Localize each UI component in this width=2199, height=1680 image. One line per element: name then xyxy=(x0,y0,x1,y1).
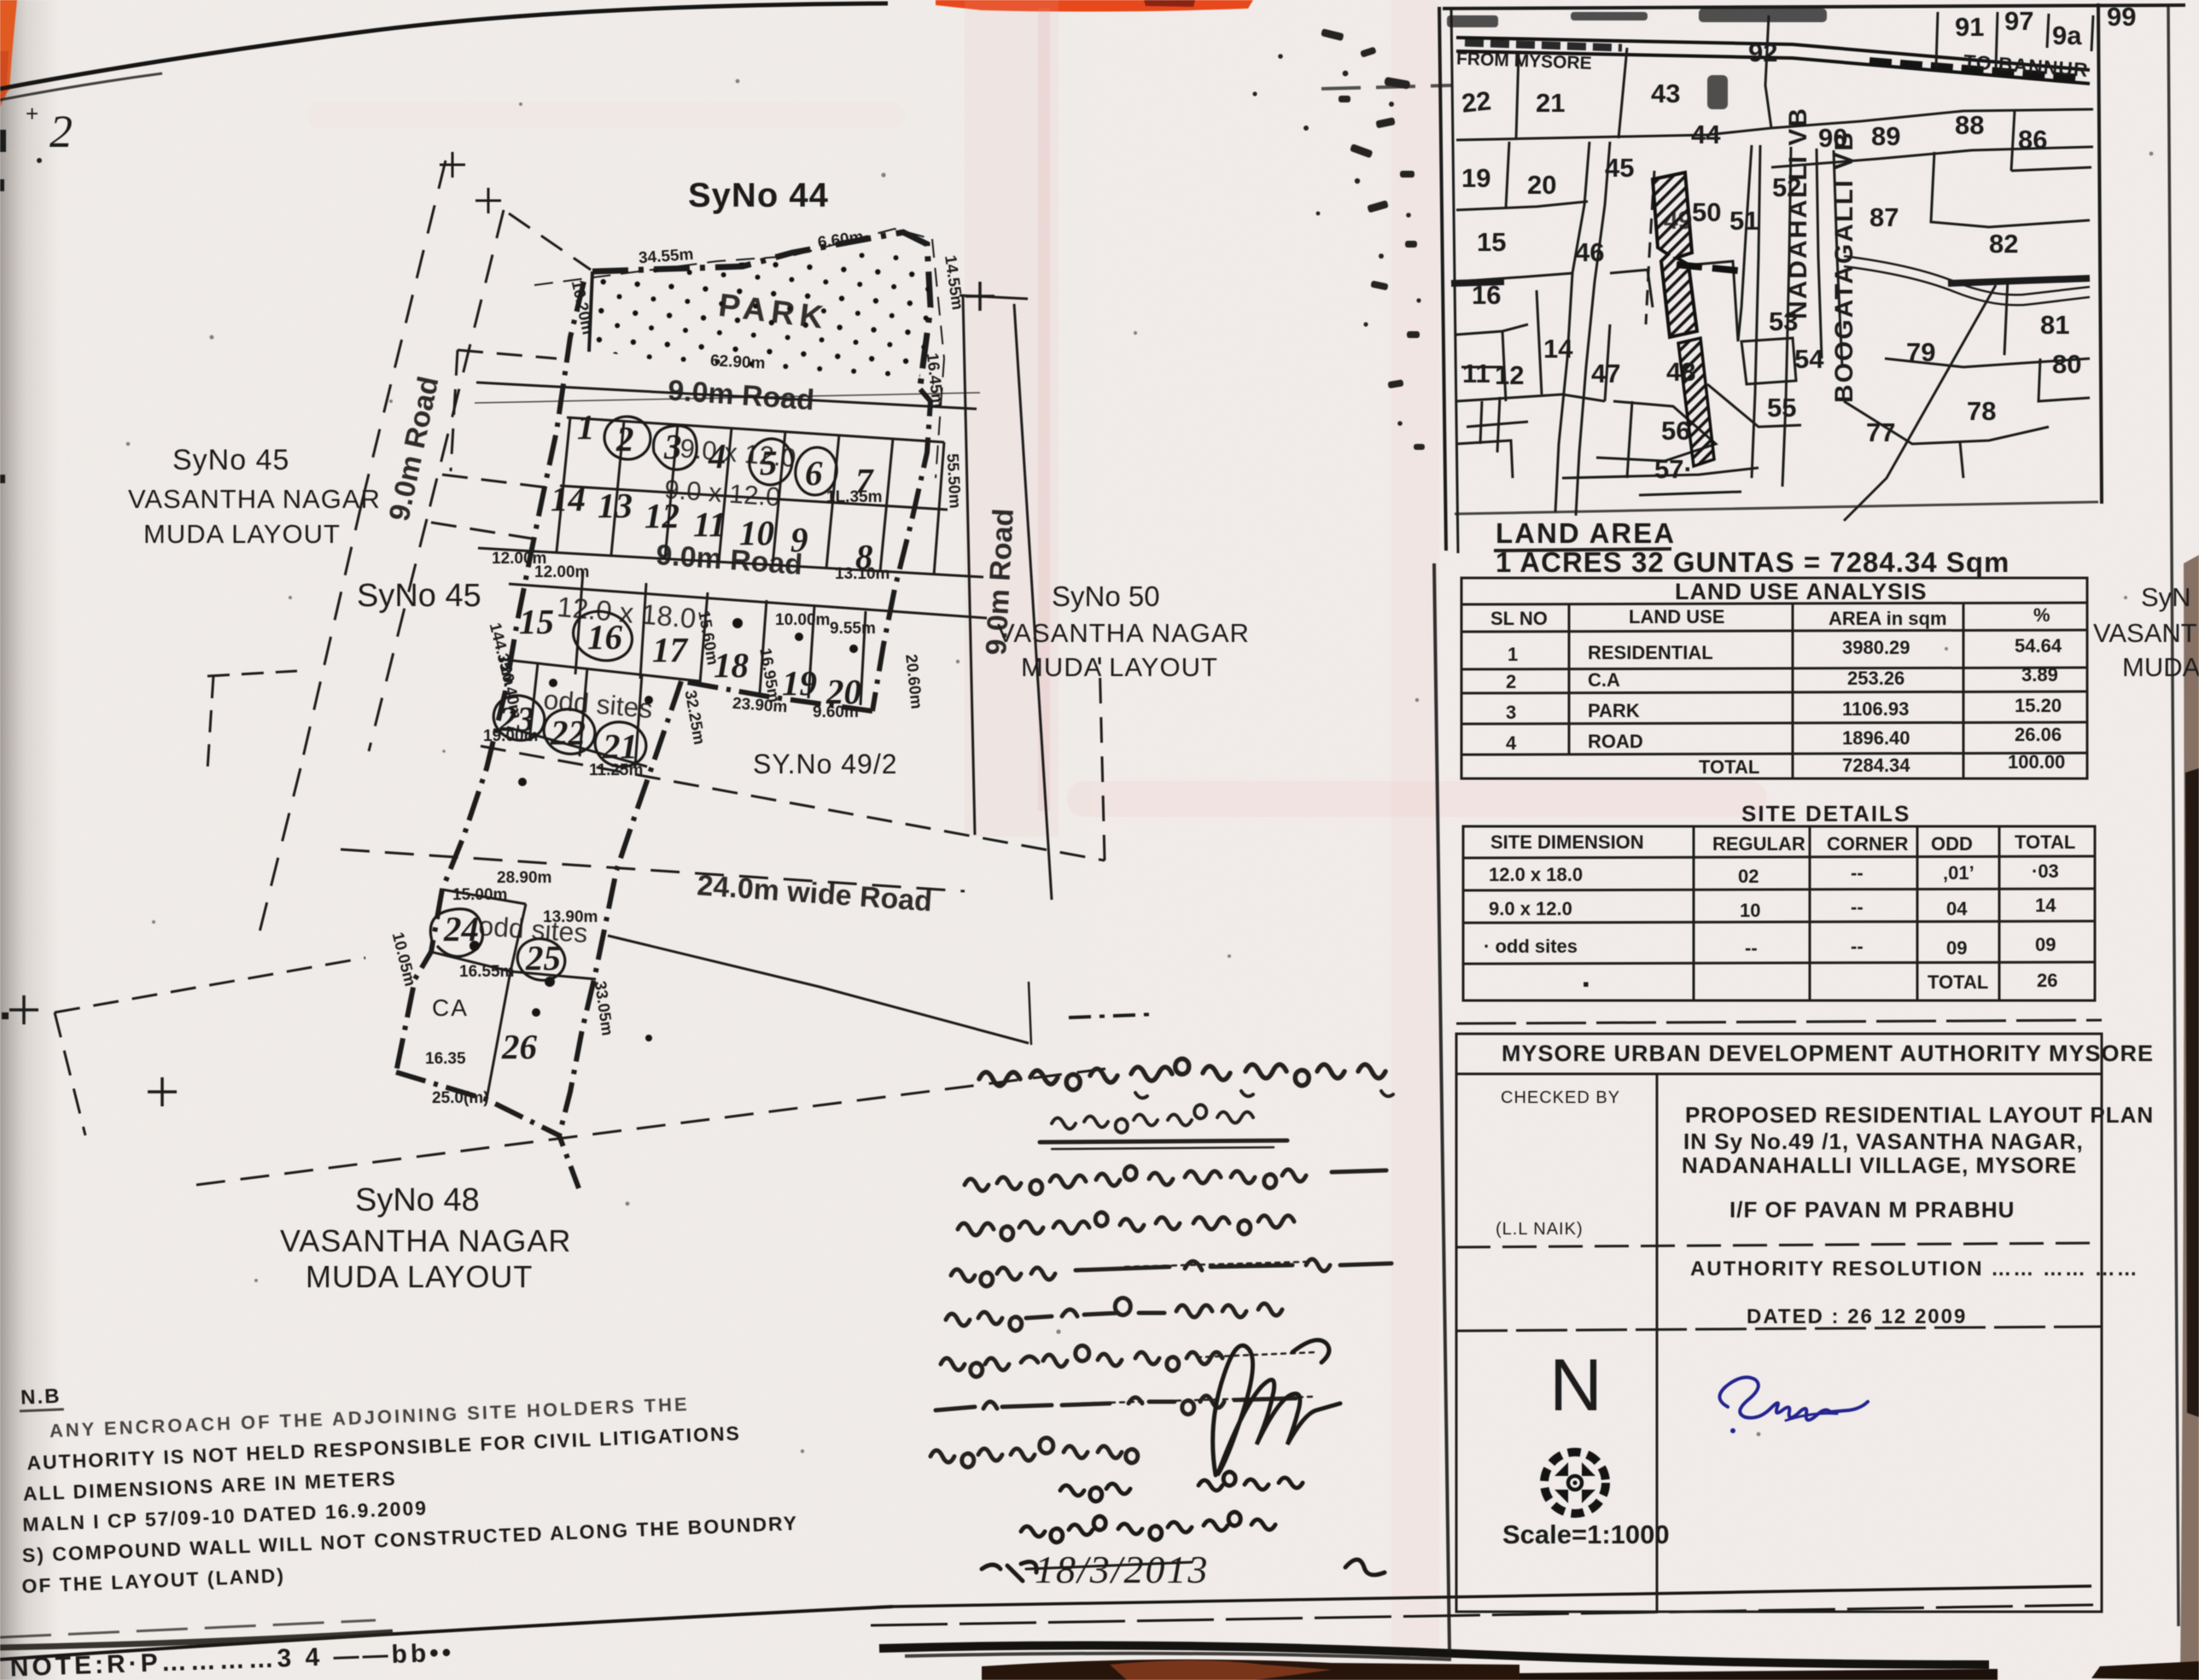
svg-text:79: 79 xyxy=(1906,337,1935,367)
svg-text:28.90m: 28.90m xyxy=(497,869,551,887)
svg-text:2: 2 xyxy=(615,419,634,458)
svg-text:TOTAL: TOTAL xyxy=(1928,971,1988,993)
svg-text:43: 43 xyxy=(1651,79,1680,108)
svg-text:48: 48 xyxy=(1666,357,1695,387)
svg-text:20: 20 xyxy=(825,672,861,711)
svg-text:--: -- xyxy=(1851,862,1864,884)
svg-text:26: 26 xyxy=(501,1027,538,1066)
svg-text:92: 92 xyxy=(1748,38,1777,67)
svg-text:LAND USE: LAND USE xyxy=(1629,606,1724,627)
svg-text:3.89: 3.89 xyxy=(2021,664,2058,685)
svg-text:7284.34: 7284.34 xyxy=(1842,755,1910,776)
svg-text:--: -- xyxy=(1851,896,1864,918)
svg-text:16: 16 xyxy=(587,617,623,656)
svg-text:1: 1 xyxy=(577,407,595,446)
svg-text:NADANAHALLI VILLAGE, MYSORE: NADANAHALLI VILLAGE, MYSORE xyxy=(1682,1152,2077,1178)
svg-text:26: 26 xyxy=(2037,970,2057,991)
svg-text:09: 09 xyxy=(1946,937,1967,959)
svg-text:44: 44 xyxy=(1691,120,1721,149)
svg-text:54.64: 54.64 xyxy=(2015,635,2062,656)
svg-text:18/3/2013: 18/3/2013 xyxy=(1035,1548,1210,1591)
svg-text:81: 81 xyxy=(2040,310,2069,340)
svg-text:TOTAL: TOTAL xyxy=(1699,756,1759,778)
svg-text:10.00m: 10.00m xyxy=(775,611,830,629)
svg-text:4: 4 xyxy=(708,436,726,475)
svg-text:3: 3 xyxy=(663,427,682,466)
svg-text:15.00m: 15.00m xyxy=(452,886,507,904)
svg-text:02: 02 xyxy=(1738,866,1759,887)
svg-text:SITE DETAILS: SITE DETAILS xyxy=(1741,801,1910,826)
svg-text:18: 18 xyxy=(714,645,749,685)
svg-text:I/F OF PAVAN M PRABHU: I/F OF PAVAN M PRABHU xyxy=(1729,1197,2015,1222)
svg-text:7: 7 xyxy=(855,461,874,500)
svg-text:91: 91 xyxy=(1955,12,1984,42)
svg-text:87: 87 xyxy=(1869,202,1899,232)
svg-text:78: 78 xyxy=(1967,396,1996,426)
svg-text:1 ACRES 32 GUNTAS = 7284.34: 1 ACRES 32 GUNTAS = 7284.34 Sqm xyxy=(1496,546,2009,578)
svg-text:9.55m: 9.55m xyxy=(830,620,876,638)
svg-text:--: -- xyxy=(1851,936,1864,957)
svg-text:62.90m: 62.90m xyxy=(709,352,765,372)
svg-text:10: 10 xyxy=(739,513,774,552)
svg-text:14: 14 xyxy=(551,479,586,518)
svg-text:47: 47 xyxy=(1591,359,1620,388)
svg-text:N.B: N.B xyxy=(20,1385,61,1409)
svg-text:21: 21 xyxy=(1536,88,1565,118)
svg-text:6: 6 xyxy=(805,453,823,493)
svg-text:11: 11 xyxy=(693,505,726,544)
svg-text:MUDA LAYOUT: MUDA LAYOUT xyxy=(1021,652,1218,682)
svg-text:99: 99 xyxy=(2107,2,2136,32)
svg-text:12.0 x 18.0: 12.0 x 18.0 xyxy=(1489,864,1583,885)
svg-text:15: 15 xyxy=(1477,227,1506,257)
svg-text:09: 09 xyxy=(2035,934,2056,955)
svg-text:19: 19 xyxy=(782,663,817,703)
svg-text:15: 15 xyxy=(519,602,554,641)
svg-text:‚01’: ‚01’ xyxy=(1943,862,1974,884)
svg-text:14: 14 xyxy=(2035,895,2056,916)
svg-text:RESIDENTIAL: RESIDENTIAL xyxy=(1588,642,1713,663)
svg-text:·03: ·03 xyxy=(2032,860,2059,882)
svg-text:22: 22 xyxy=(550,713,586,752)
svg-text:SL NO: SL NO xyxy=(1490,608,1548,629)
svg-text:LAND AREA: LAND AREA xyxy=(1496,517,1676,549)
svg-text:22: 22 xyxy=(1460,85,1492,118)
svg-text:2: 2 xyxy=(1506,671,1516,692)
svg-text:1L.35m: 1L.35m xyxy=(826,488,882,506)
svg-text:57·: 57· xyxy=(1654,454,1693,484)
svg-text:9.0 x 12.0: 9.0 x 12.0 xyxy=(1489,898,1572,919)
svg-text:REGULAR: REGULAR xyxy=(1712,833,1805,855)
svg-text:04: 04 xyxy=(1946,898,1968,919)
svg-text:· odd sites: · odd sites xyxy=(1484,936,1578,957)
svg-text:CA: CA xyxy=(432,995,469,1021)
svg-text:1896.40: 1896.40 xyxy=(1842,727,1910,749)
svg-text:86: 86 xyxy=(2018,125,2047,155)
svg-text:100.00: 100.00 xyxy=(2008,751,2065,773)
svg-text:54: 54 xyxy=(1794,344,1824,374)
svg-text:34.55m: 34.55m xyxy=(638,246,694,267)
svg-text:3980.29: 3980.29 xyxy=(1842,637,1910,658)
svg-text:Scale=1:1000: Scale=1:1000 xyxy=(1502,1520,1670,1549)
svg-text:VASANTH: VASANTH xyxy=(2093,618,2199,648)
svg-text:CHECKED BY: CHECKED BY xyxy=(1501,1088,1620,1107)
svg-text:PROPOSED RESIDENTIAL LAYOUT P: PROPOSED RESIDENTIAL LAYOUT PLAN xyxy=(1685,1102,2154,1128)
svg-text:45: 45 xyxy=(1605,153,1634,183)
svg-text:MUDA LAYOUT: MUDA LAYOUT xyxy=(306,1259,533,1294)
svg-text:56: 56 xyxy=(1661,416,1690,446)
svg-text:▪: ▪ xyxy=(1583,973,1589,995)
svg-text:2: 2 xyxy=(50,106,73,157)
svg-text:SyNo 44: SyNo 44 xyxy=(688,177,829,214)
svg-text:VASANTHA NAGAR: VASANTHA NAGAR xyxy=(280,1223,571,1258)
svg-text:23.90m: 23.90m xyxy=(732,695,788,716)
svg-text:9: 9 xyxy=(790,520,808,559)
svg-text:12.00m: 12.00m xyxy=(534,563,589,581)
svg-text:%: % xyxy=(2033,604,2050,626)
svg-text:3: 3 xyxy=(1506,702,1516,723)
svg-text:ODD: ODD xyxy=(1931,833,1973,855)
svg-text:77: 77 xyxy=(1866,417,1895,447)
svg-text:TOTAL: TOTAL xyxy=(2015,831,2075,853)
svg-text:12: 12 xyxy=(645,496,680,535)
svg-text:50: 50 xyxy=(1692,197,1721,227)
svg-text:VASANTHA NAGAR: VASANTHA NAGAR xyxy=(128,484,381,514)
svg-text:55: 55 xyxy=(1767,393,1796,423)
svg-text:49: 49 xyxy=(1664,207,1692,235)
svg-text:CORNER: CORNER xyxy=(1827,833,1908,855)
svg-text:19: 19 xyxy=(1461,163,1490,193)
svg-text:AREA in sqm: AREA in sqm xyxy=(1829,608,1947,629)
svg-text:11: 11 xyxy=(1462,359,1490,388)
svg-text:DATED : 26 12 2009: DATED : 26 12 2009 xyxy=(1747,1305,1967,1328)
svg-text:51: 51 xyxy=(1729,206,1759,236)
svg-text:5: 5 xyxy=(760,443,778,482)
svg-text:1106.93: 1106.93 xyxy=(1842,698,1909,720)
svg-text:C.A: C.A xyxy=(1588,669,1620,691)
svg-text:13: 13 xyxy=(598,486,633,525)
svg-text:46: 46 xyxy=(1575,237,1604,267)
svg-text:SITE DIMENSION: SITE DIMENSION xyxy=(1490,831,1644,853)
svg-text:MYSORE URBAN DEVELOPMENT AUTHO: MYSORE URBAN DEVELOPMENT AUTHORITY MYSOR… xyxy=(1502,1041,2154,1066)
svg-text:16: 16 xyxy=(1472,280,1501,310)
svg-text:15.20: 15.20 xyxy=(2015,695,2062,716)
svg-text:23: 23 xyxy=(499,699,534,738)
svg-text:16.35: 16.35 xyxy=(425,1050,466,1068)
svg-text:VASANTHA NAGAR: VASANTHA NAGAR xyxy=(997,618,1250,648)
svg-text:10: 10 xyxy=(1740,900,1760,921)
svg-text:AUTHORITY RESOLUTION …… …… ……: AUTHORITY RESOLUTION …… …… …… xyxy=(1690,1257,2139,1280)
svg-text:13.90m: 13.90m xyxy=(543,908,598,926)
svg-text:25.0(m): 25.0(m) xyxy=(432,1089,489,1107)
svg-text:IN Sy No.49 /1, VASANTHA NAGAR: IN Sy No.49 /1, VASANTHA NAGAR, xyxy=(1683,1129,2084,1154)
svg-text:SyNo 45: SyNo 45 xyxy=(357,578,481,614)
svg-text:16.55m: 16.55m xyxy=(459,963,514,981)
svg-text:253.26: 253.26 xyxy=(1847,668,1904,689)
svg-text:9a: 9a xyxy=(2052,20,2082,50)
svg-text:SyNo 48: SyNo 48 xyxy=(355,1182,480,1218)
svg-text:20: 20 xyxy=(1527,170,1556,200)
svg-text:BOOGATAGALLI VB: BOOGATAGALLI VB xyxy=(1830,131,1858,403)
svg-text:89: 89 xyxy=(1871,121,1900,151)
svg-text:26.06: 26.06 xyxy=(2015,724,2062,745)
svg-text:17: 17 xyxy=(652,630,689,669)
svg-text:88: 88 xyxy=(1955,110,1984,140)
svg-text:82: 82 xyxy=(1989,229,2018,259)
svg-text:(L.L NAIK): (L.L NAIK) xyxy=(1496,1220,1584,1239)
svg-text:12: 12 xyxy=(1495,360,1524,390)
svg-text:8: 8 xyxy=(855,537,873,576)
svg-text:LAND USE ANALYSIS: LAND USE ANALYSIS xyxy=(1675,579,1928,604)
svg-text:14: 14 xyxy=(1543,334,1573,364)
svg-text:80: 80 xyxy=(2052,349,2081,379)
svg-text:55.50m: 55.50m xyxy=(943,453,964,509)
svg-text:1: 1 xyxy=(1508,644,1518,665)
svg-text:97: 97 xyxy=(2004,6,2033,36)
svg-text:+: + xyxy=(26,101,38,126)
svg-text:21: 21 xyxy=(602,726,638,766)
svg-text:SyNo 50: SyNo 50 xyxy=(1052,580,1160,612)
svg-text:ROAD: ROAD xyxy=(1588,731,1643,752)
svg-text:SyN: SyN xyxy=(2141,582,2191,612)
svg-text:--: -- xyxy=(1745,937,1758,959)
svg-text:SY.No 49/2: SY.No 49/2 xyxy=(753,749,898,779)
svg-text:MUDA L: MUDA L xyxy=(2122,652,2199,682)
svg-text:PARK: PARK xyxy=(1588,700,1640,721)
svg-text:N: N xyxy=(1549,1345,1602,1426)
svg-text:MUDA LAYOUT: MUDA LAYOUT xyxy=(143,519,341,549)
svg-text:NADAHALLI VB: NADAHALLI VB xyxy=(1784,107,1812,319)
svg-text:4: 4 xyxy=(1506,732,1517,754)
svg-text:SyNo 45: SyNo 45 xyxy=(172,444,289,476)
